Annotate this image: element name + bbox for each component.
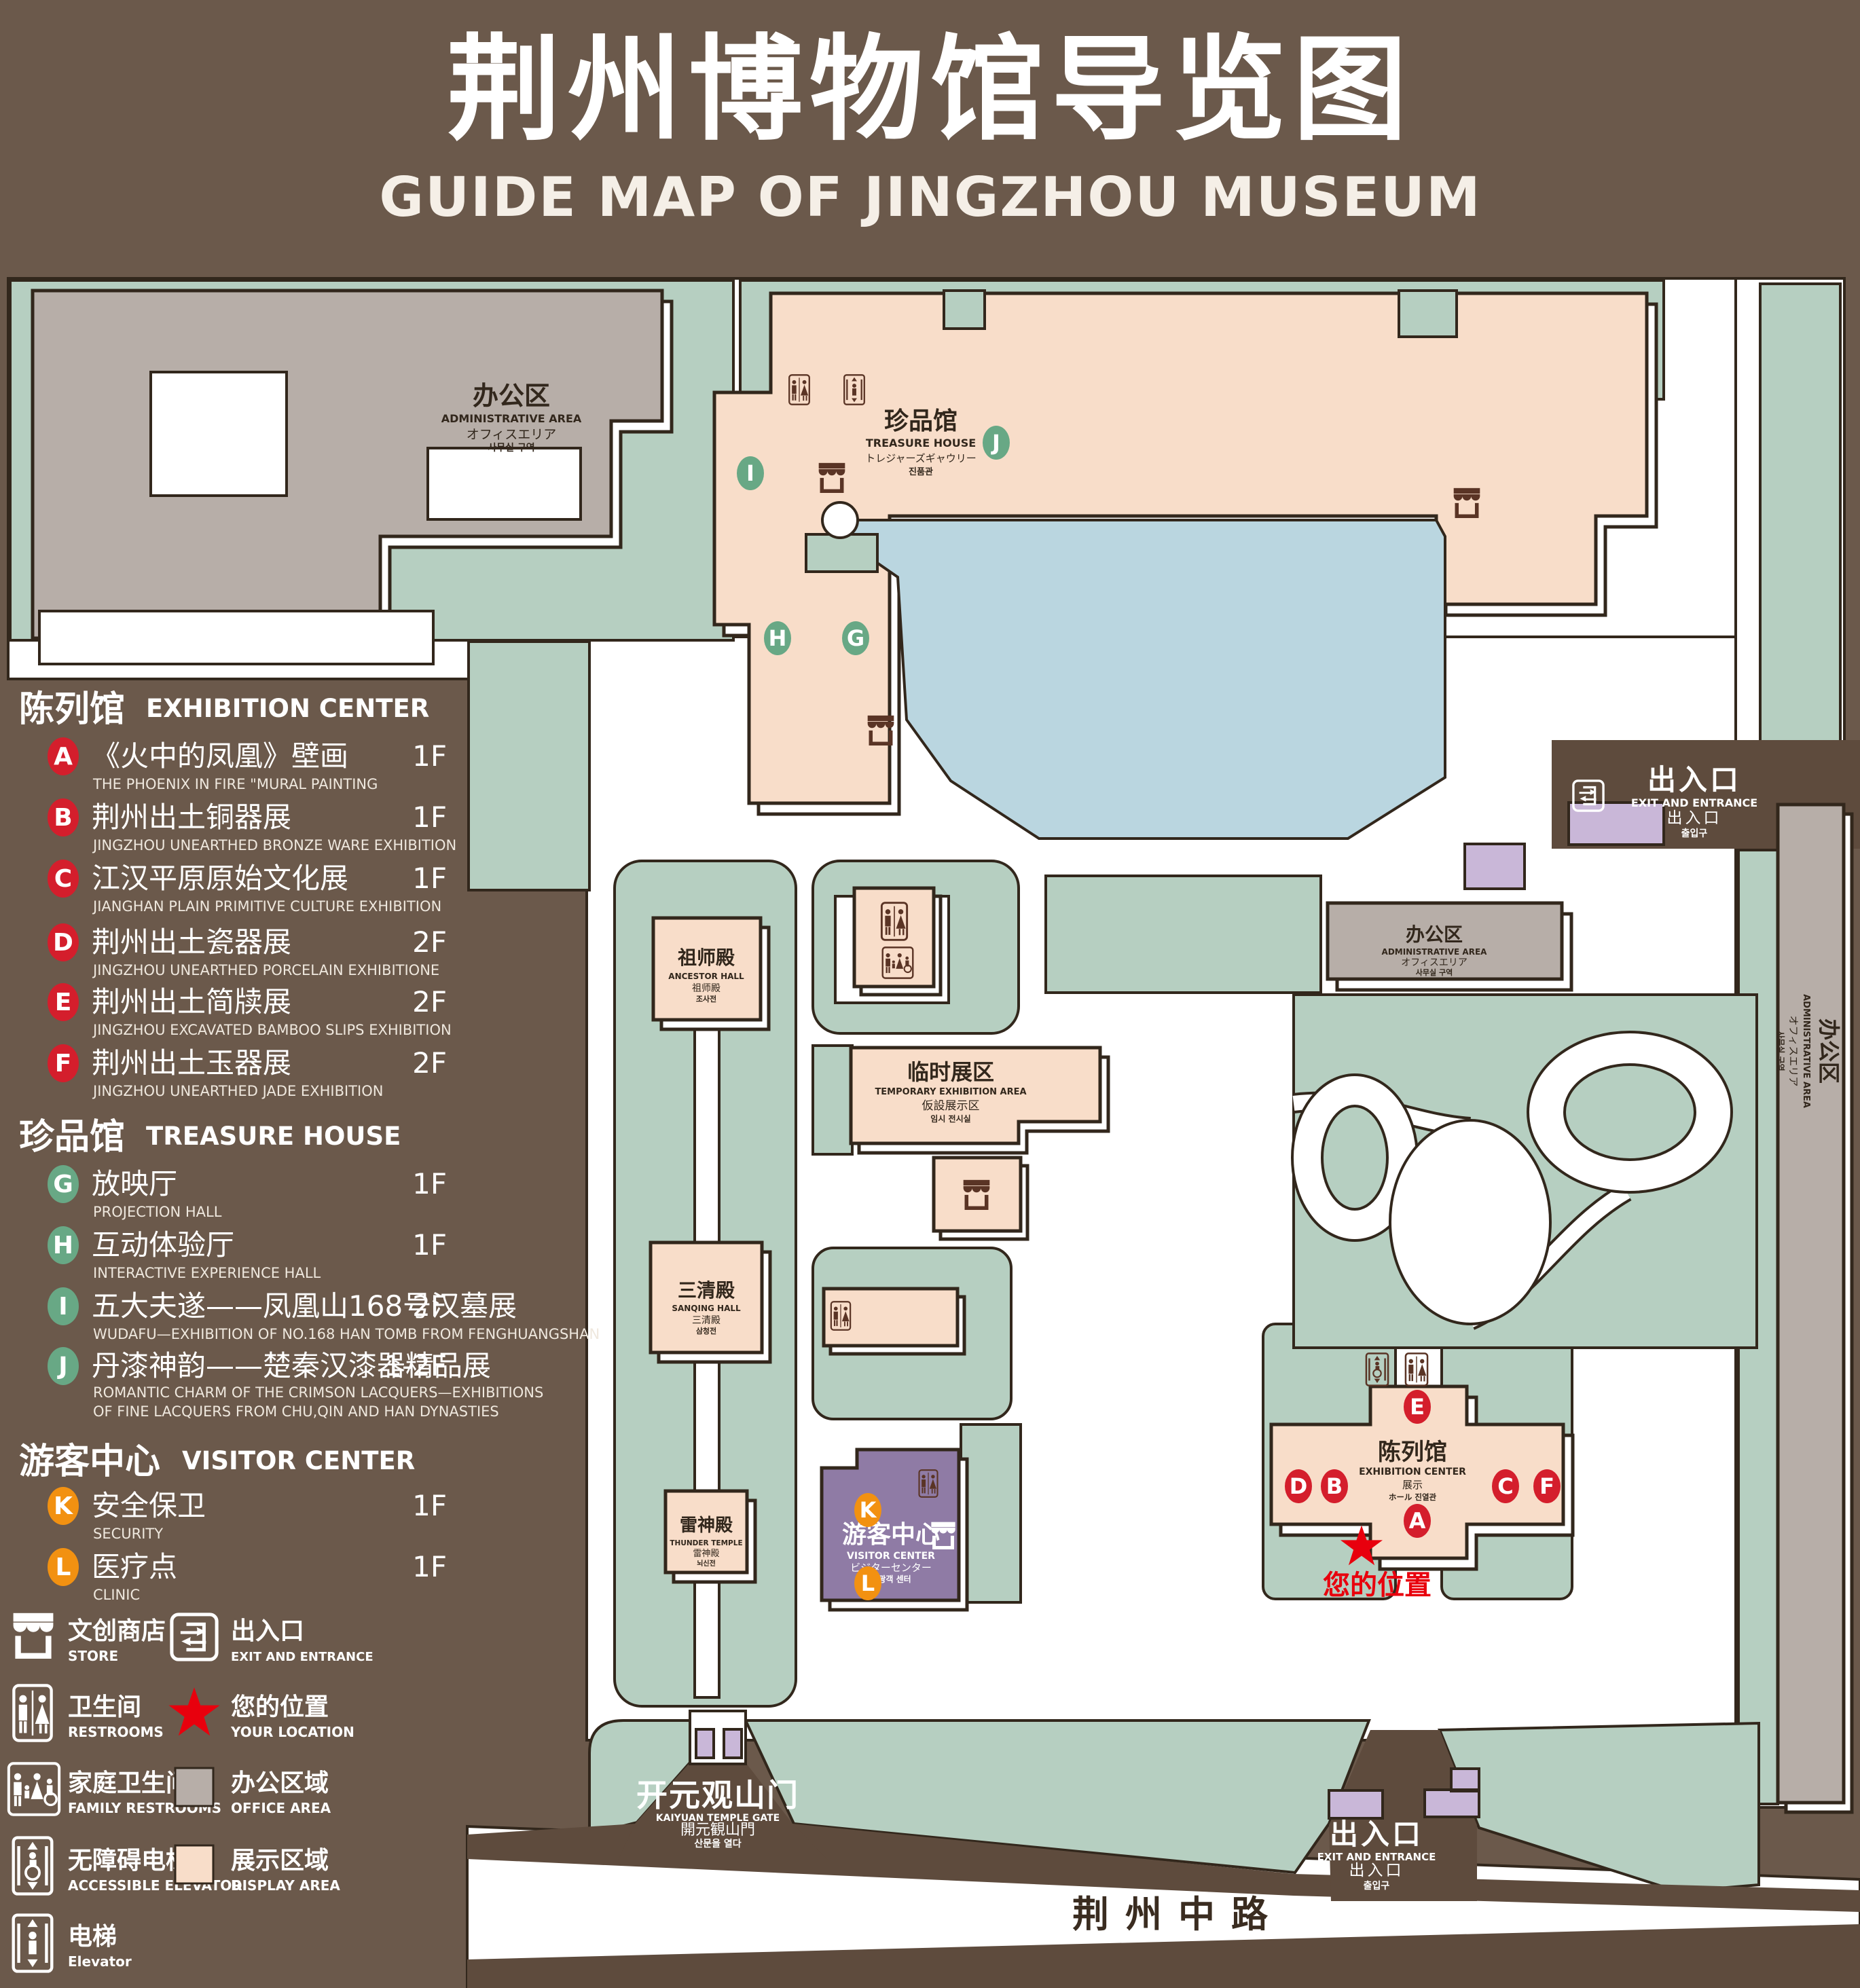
svg-text:삼청전: 삼청전 <box>696 1326 716 1336</box>
svg-text:放映厅: 放映厅 <box>92 1167 177 1200</box>
svg-text:B: B <box>1326 1473 1343 1499</box>
marker-A: A <box>1404 1504 1431 1538</box>
svg-text:Elevator: Elevator <box>68 1953 132 1970</box>
guide-map-poster: 荆州博物馆导览图 GUIDE MAP OF JINGZHOU MUSEUM <box>0 0 1860 1988</box>
restroom-compound <box>835 888 949 1003</box>
marker-E: E <box>1404 1390 1431 1424</box>
svg-text:1F: 1F <box>412 1228 447 1262</box>
svg-text:出入口: 出入口 <box>1667 809 1722 827</box>
marker-H: H <box>764 621 791 655</box>
svg-text:THUNDER TEMPLE: THUNDER TEMPLE <box>670 1539 742 1547</box>
svg-text:トレジャーズギャウリー: トレジャーズギャウリー <box>865 452 977 464</box>
svg-text:家庭卫生间: 家庭卫生间 <box>68 1769 190 1797</box>
svg-text:1F: 1F <box>412 739 447 773</box>
office-area-swatch <box>175 1768 213 1806</box>
legend-section-title: 陈列馆 <box>19 689 125 730</box>
svg-text:办公区: 办公区 <box>1406 923 1463 946</box>
page-title: 荆州博物馆导览图 <box>447 23 1414 156</box>
svg-text:K: K <box>54 1492 73 1520</box>
svg-text:1F: 1F <box>412 800 447 834</box>
legend-section-title-en: TREASURE HOUSE <box>146 1122 401 1151</box>
marker-B: B <box>1321 1469 1348 1503</box>
svg-text:文创商店: 文创商店 <box>68 1617 166 1645</box>
svg-text:E: E <box>55 989 72 1016</box>
legend-section-title-en: EXHIBITION CENTER <box>146 694 429 723</box>
thunder-temple: 雷神殿 THUNDER TEMPLE 雷神殿 뇌신전 <box>665 1491 755 1582</box>
svg-text:1F: 1F <box>412 862 447 895</box>
marker-J: J <box>983 426 1010 460</box>
svg-text:2F: 2F <box>412 1046 447 1080</box>
pond-bridge <box>822 502 858 538</box>
svg-text:B: B <box>54 804 72 832</box>
svg-text:荆州出土玉器展: 荆州出土玉器展 <box>92 1046 291 1080</box>
page-subtitle: GUIDE MAP OF JINGZHOU MUSEUM <box>379 166 1481 229</box>
svg-text:DISPLAY AREA: DISPLAY AREA <box>231 1877 340 1894</box>
svg-text:사무실 구역: 사무실 구역 <box>1776 1031 1786 1071</box>
svg-text:C: C <box>54 865 72 893</box>
svg-text:ANCESTOR HALL: ANCESTOR HALL <box>668 972 744 981</box>
svg-text:조사전: 조사전 <box>696 994 716 1004</box>
svg-text:E: E <box>1410 1394 1425 1420</box>
svg-text:荆州出土简牍展: 荆州出土简牍展 <box>92 985 291 1018</box>
svg-text:임시 전시실: 임시 전시실 <box>930 1113 970 1124</box>
marker-K: K <box>854 1493 881 1527</box>
svg-text:无障碍电梯: 无障碍电梯 <box>68 1847 190 1875</box>
svg-text:オフィスエリア: オフィスエリア <box>1787 1016 1800 1087</box>
svg-text:출입구: 출입구 <box>1681 828 1708 839</box>
svg-text:ホール 진열관: ホール 진열관 <box>1389 1492 1437 1502</box>
svg-text:オフィスエリア: オフィスエリア <box>467 427 557 442</box>
svg-text:出入口: 出入口 <box>1647 763 1741 796</box>
sanqing-hall: 三清殿 SANQING HALL 三清殿 삼청전 <box>651 1242 770 1362</box>
svg-text:사무실 구역: 사무실 구역 <box>488 442 534 454</box>
south-annex <box>824 1289 964 1354</box>
legend-section-title: 游客中心 <box>19 1441 160 1482</box>
svg-text:仮設展示区: 仮設展示区 <box>922 1099 980 1113</box>
svg-text:医疗点: 医疗点 <box>92 1550 177 1583</box>
svg-text:SECURITY: SECURITY <box>93 1526 163 1542</box>
svg-text:EXIT AND ENTRANCE: EXIT AND ENTRANCE <box>1631 796 1757 809</box>
svg-text:CLINIC: CLINIC <box>93 1587 140 1603</box>
svg-text:1F: 1F <box>412 1550 447 1583</box>
svg-text:A: A <box>1409 1508 1426 1534</box>
svg-text:OF FINE LACQUERS FROM CHU,QIN: OF FINE LACQUERS FROM CHU,QIN AND HAN DY… <box>93 1403 499 1420</box>
svg-text:ADMINISTRATIVE AREA: ADMINISTRATIVE AREA <box>1801 994 1811 1108</box>
svg-text:出入口: 出入口 <box>1330 1818 1423 1851</box>
svg-text:L: L <box>861 1570 875 1596</box>
gate-pillar-right <box>724 1729 742 1758</box>
svg-text:ROMANTIC CHARM OF THE CRIMSON: ROMANTIC CHARM OF THE CRIMSON LACQUERS—E… <box>93 1384 543 1401</box>
svg-text:展示: 展示 <box>1402 1479 1423 1491</box>
admin-building-east: 办公区 ADMINISTRATIVE AREA オフィスエリア 사무실 구역 <box>1328 903 1571 990</box>
svg-text:卫生间: 卫生间 <box>68 1693 141 1721</box>
svg-text:JIANGHAN PLAIN PRIMITIVE CULTU: JIANGHAN PLAIN PRIMITIVE CULTURE EXHIBIT… <box>92 898 441 915</box>
svg-text:YOUR LOCATION: YOUR LOCATION <box>230 1724 354 1740</box>
svg-text:办公区: 办公区 <box>1816 1018 1842 1084</box>
svg-text:您的位置: 您的位置 <box>231 1693 329 1721</box>
your-location-label: 您的位置 <box>1323 1570 1432 1601</box>
svg-text:진품관: 진품관 <box>909 466 933 477</box>
svg-text:三清殿: 三清殿 <box>678 1279 735 1302</box>
marker-F: F <box>1533 1469 1561 1503</box>
marker-D: D <box>1285 1469 1312 1503</box>
svg-text:三清殿: 三清殿 <box>692 1315 721 1326</box>
annex-building <box>1465 844 1525 889</box>
svg-text:EXIT AND ENTRANCE: EXIT AND ENTRANCE <box>231 1650 373 1664</box>
svg-text:出入口: 出入口 <box>231 1617 304 1645</box>
svg-text:TREASURE HOUSE: TREASURE HOUSE <box>866 437 976 449</box>
svg-text:2F: 2F <box>412 925 447 959</box>
svg-text:雷神殿: 雷神殿 <box>693 1549 719 1559</box>
svg-text:1-2F: 1-2F <box>384 1349 447 1382</box>
svg-text:H: H <box>53 1232 73 1259</box>
svg-text:展示区域: 展示区域 <box>231 1847 329 1875</box>
svg-text:JINGZHOU EXCAVATED BAMBOO SLIP: JINGZHOU EXCAVATED BAMBOO SLIPS EXHIBITI… <box>92 1022 452 1038</box>
svg-text:ACCESSIBLE ELEVATOR: ACCESSIBLE ELEVATOR <box>68 1877 242 1894</box>
svg-text:ADMINISTRATIVE AREA: ADMINISTRATIVE AREA <box>441 412 582 425</box>
svg-text:1F: 1F <box>412 1167 447 1200</box>
svg-text:SANQING HALL: SANQING HALL <box>672 1304 741 1313</box>
svg-text:사무실 구역: 사무실 구역 <box>1416 968 1453 977</box>
svg-text:雷神殿: 雷神殿 <box>680 1515 733 1536</box>
svg-text:JINGZHOU UNEARTHED PORCELAIN E: JINGZHOU UNEARTHED PORCELAIN EXHIBITIONE <box>92 962 439 978</box>
svg-text:L: L <box>56 1553 71 1581</box>
svg-text:I: I <box>58 1293 67 1321</box>
svg-text:1F: 1F <box>412 1489 447 1522</box>
svg-text:オフィスエリア: オフィスエリア <box>1401 957 1467 968</box>
svg-text:临时展区: 临时展区 <box>907 1059 994 1085</box>
svg-text:2F: 2F <box>412 1289 447 1323</box>
legend-section-title: 珍品馆 <box>19 1117 125 1158</box>
svg-text:安全保卫: 安全保卫 <box>92 1489 206 1522</box>
svg-text:출입구: 출입구 <box>1364 1880 1390 1892</box>
svg-text:I: I <box>746 460 754 486</box>
svg-text:JINGZHOU UNEARTHED BRONZE WARE: JINGZHOU UNEARTHED BRONZE WARE EXHIBITIO… <box>92 837 456 853</box>
svg-text:RESTROOMS: RESTROOMS <box>68 1724 164 1740</box>
marker-C: C <box>1492 1469 1519 1503</box>
svg-text:H: H <box>769 625 787 651</box>
svg-text:WUDAFU—EXHIBITION OF NO.168 HA: WUDAFU—EXHIBITION OF NO.168 HAN TOMB FRO… <box>93 1326 600 1342</box>
svg-text:G: G <box>53 1171 73 1198</box>
svg-text:出入口: 出入口 <box>1349 1862 1404 1879</box>
ancestor-hall: 祖师殿 ANCESTOR HALL 祖师殿 조사전 <box>653 918 769 1029</box>
svg-text:G: G <box>847 625 864 651</box>
marker-I: I <box>737 456 764 490</box>
marker-G: G <box>842 621 869 655</box>
marker-L: L <box>854 1566 881 1600</box>
svg-text:电梯: 电梯 <box>68 1923 117 1951</box>
store-annex <box>934 1158 1027 1239</box>
svg-text:C: C <box>1497 1473 1513 1499</box>
svg-text:江汉平原原始文化展: 江汉平原原始文化展 <box>92 862 348 895</box>
svg-text:J: J <box>991 430 1000 456</box>
svg-text:祖师殿: 祖师殿 <box>692 983 721 994</box>
svg-text:ADMINISTRATIVE AREA: ADMINISTRATIVE AREA <box>1382 947 1488 957</box>
admin-strip-east: 办公区 ADMINISTRATIVE AREA オフィスエリア 사무실 구역 <box>1776 805 1852 1812</box>
svg-text:INTERACTIVE EXPERIENCE HALL: INTERACTIVE EXPERIENCE HALL <box>93 1265 321 1281</box>
svg-text:办公区域: 办公区域 <box>231 1769 329 1797</box>
road-name: 荆州中路 <box>1072 1893 1284 1936</box>
svg-text:五大夫遂——凤凰山168号汉墓展: 五大夫遂——凤凰山168号汉墓展 <box>92 1289 517 1323</box>
svg-text:F: F <box>1539 1473 1554 1499</box>
svg-text:뇌신전: 뇌신전 <box>697 1559 716 1568</box>
svg-text:K: K <box>860 1497 877 1523</box>
gate-pillar-left <box>696 1729 714 1758</box>
svg-text:荆州出土瓷器展: 荆州出土瓷器展 <box>92 925 291 959</box>
svg-text:游客中心: 游客中心 <box>842 1521 940 1549</box>
svg-text:祖师殿: 祖师殿 <box>678 946 735 969</box>
legend-section-title-en: VISITOR CENTER <box>182 1446 415 1475</box>
visitor-center-building: 游客中心 VISITOR CENTER ビジターセンター 관광객 센터 <box>822 1450 967 1610</box>
svg-text:D: D <box>53 929 73 957</box>
svg-text:THE PHOENIX IN FIRE "MURAL PAI: THE PHOENIX IN FIRE "MURAL PAINTING <box>92 776 378 792</box>
svg-text:TEMPORARY EXHIBITION AREA: TEMPORARY EXHIBITION AREA <box>875 1087 1026 1097</box>
svg-text:《火中的凤凰》壁画: 《火中的凤凰》壁画 <box>92 739 348 773</box>
svg-text:2F: 2F <box>412 985 447 1018</box>
svg-text:PROJECTION HALL: PROJECTION HALL <box>93 1204 222 1220</box>
svg-text:珍品馆: 珍品馆 <box>884 407 958 435</box>
svg-text:JINGZHOU UNEARTHED JADE EXHIBI: JINGZHOU UNEARTHED JADE EXHIBITION <box>92 1083 383 1099</box>
svg-text:办公区: 办公区 <box>473 381 550 411</box>
svg-text:荆州出土铜器展: 荆州出土铜器展 <box>92 800 291 834</box>
svg-text:A: A <box>54 743 73 771</box>
svg-text:F: F <box>55 1050 72 1078</box>
exit-annex <box>1329 1790 1383 1818</box>
svg-text:陈列馆: 陈列馆 <box>1378 1439 1447 1466</box>
svg-text:J: J <box>56 1352 67 1380</box>
svg-text:산문을 열다: 산문을 열다 <box>694 1838 741 1849</box>
svg-text:EXHIBITION CENTER: EXHIBITION CENTER <box>1359 1467 1466 1477</box>
svg-text:開元観山門: 開元観山門 <box>680 1822 755 1839</box>
svg-text:VISITOR CENTER: VISITOR CENTER <box>847 1551 935 1562</box>
display-area-swatch <box>175 1845 213 1883</box>
svg-text:开元观山门: 开元观山门 <box>636 1777 799 1814</box>
svg-text:OFFICE AREA: OFFICE AREA <box>231 1800 331 1816</box>
svg-text:STORE: STORE <box>68 1648 118 1664</box>
legend-symbol-elevator: 电梯 Elevator <box>14 1915 132 1972</box>
svg-text:互动体验厅: 互动体验厅 <box>92 1228 234 1262</box>
svg-text:D: D <box>1290 1473 1308 1499</box>
